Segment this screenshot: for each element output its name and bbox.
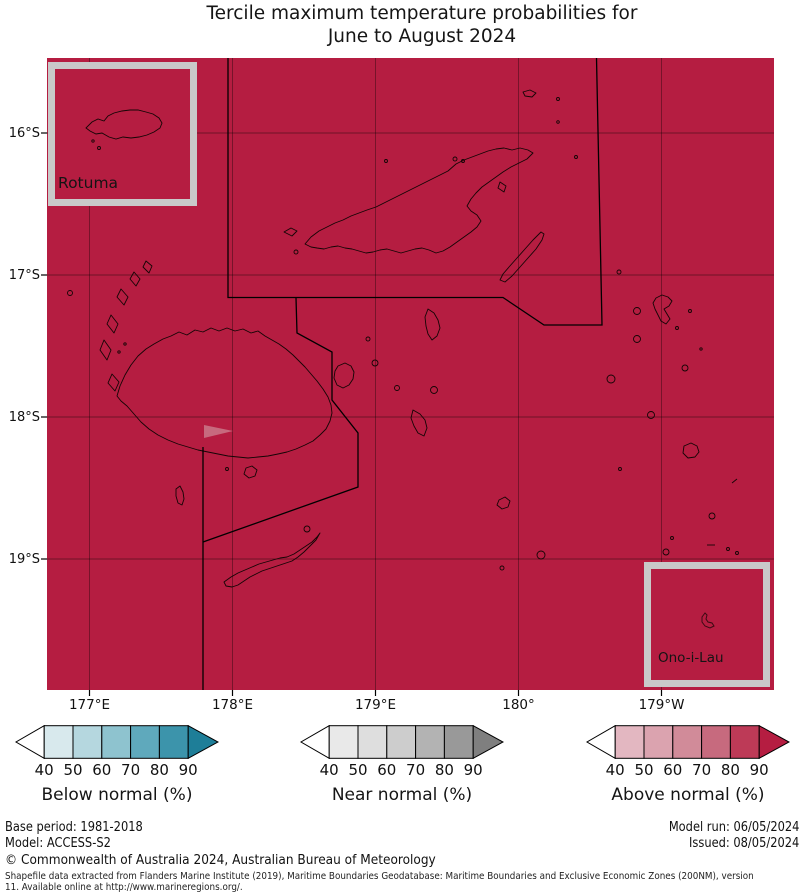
inset-rotuma-label: Rotuma bbox=[58, 174, 118, 192]
legend-near-normal-title: Near normal (%) bbox=[300, 785, 504, 805]
legend3-tick-60: 60 bbox=[658, 761, 688, 779]
legend-right-arrow bbox=[759, 726, 789, 759]
legend1-tick-90: 90 bbox=[173, 761, 203, 779]
lat-label-17s: 17°S bbox=[0, 268, 40, 283]
legend-left-arrow bbox=[301, 726, 329, 759]
legend1-tick-40: 40 bbox=[29, 761, 59, 779]
legend1-tick-70: 70 bbox=[116, 761, 146, 779]
legend3-tick-90: 90 bbox=[744, 761, 774, 779]
legend3-tick-40: 40 bbox=[600, 761, 630, 779]
lon-label-179w: 179°W bbox=[630, 697, 694, 713]
legend3-tick-50: 50 bbox=[629, 761, 659, 779]
issued-text: Issued: 08/05/2024 bbox=[689, 836, 799, 851]
legend2-tick-40: 40 bbox=[314, 761, 344, 779]
shapefile-note-line1: Shapefile data extracted from Flanders M… bbox=[5, 871, 754, 882]
model-run-text: Model run: 06/05/2024 bbox=[668, 820, 799, 835]
legend-below-normal-bar bbox=[15, 725, 219, 759]
lon-label-178e: 178°E bbox=[201, 697, 265, 713]
chart-title-line2: June to August 2024 bbox=[20, 26, 804, 47]
lon-label-179e: 179°E bbox=[344, 697, 408, 713]
model-text: Model: ACCESS-S2 bbox=[5, 836, 111, 851]
copyright-text: © Commonwealth of Australia 2024, Austra… bbox=[5, 852, 436, 868]
legend3-tick-80: 80 bbox=[715, 761, 745, 779]
legend2-tick-60: 60 bbox=[372, 761, 402, 779]
lat-label-16s: 16°S bbox=[0, 126, 40, 141]
legend-right-arrow bbox=[188, 726, 218, 759]
base-period-text: Base period: 1981-2018 bbox=[5, 820, 143, 835]
legend-left-arrow bbox=[16, 726, 44, 759]
legend-above-normal-bar bbox=[586, 725, 790, 759]
inset-ono-label: Ono-i-Lau bbox=[658, 650, 724, 666]
lon-label-177e: 177°E bbox=[58, 697, 122, 713]
legend-left-arrow bbox=[587, 726, 615, 759]
legend-below-normal-title: Below normal (%) bbox=[15, 785, 219, 805]
legend2-tick-50: 50 bbox=[343, 761, 373, 779]
legend2-tick-80: 80 bbox=[429, 761, 459, 779]
legend1-tick-80: 80 bbox=[144, 761, 174, 779]
figure: Tercile maximum temperature probabilitie… bbox=[0, 0, 804, 896]
probability-map bbox=[40, 58, 774, 696]
legend2-tick-90: 90 bbox=[458, 761, 488, 779]
legend3-tick-70: 70 bbox=[687, 761, 717, 779]
chart-title-line1: Tercile maximum temperature probabilitie… bbox=[20, 3, 804, 24]
lat-label-18s: 18°S bbox=[0, 410, 40, 425]
lon-label-180: 180° bbox=[487, 697, 551, 713]
legend-near-normal-bar bbox=[300, 725, 504, 759]
legend1-tick-60: 60 bbox=[87, 761, 117, 779]
shapefile-note-line2: 11. Available online at http://www.marin… bbox=[5, 882, 243, 893]
legend2-tick-70: 70 bbox=[401, 761, 431, 779]
lat-label-19s: 19°S bbox=[0, 552, 40, 567]
legend-right-arrow bbox=[473, 726, 503, 759]
legend-above-normal-title: Above normal (%) bbox=[586, 785, 790, 805]
legend1-tick-50: 50 bbox=[58, 761, 88, 779]
